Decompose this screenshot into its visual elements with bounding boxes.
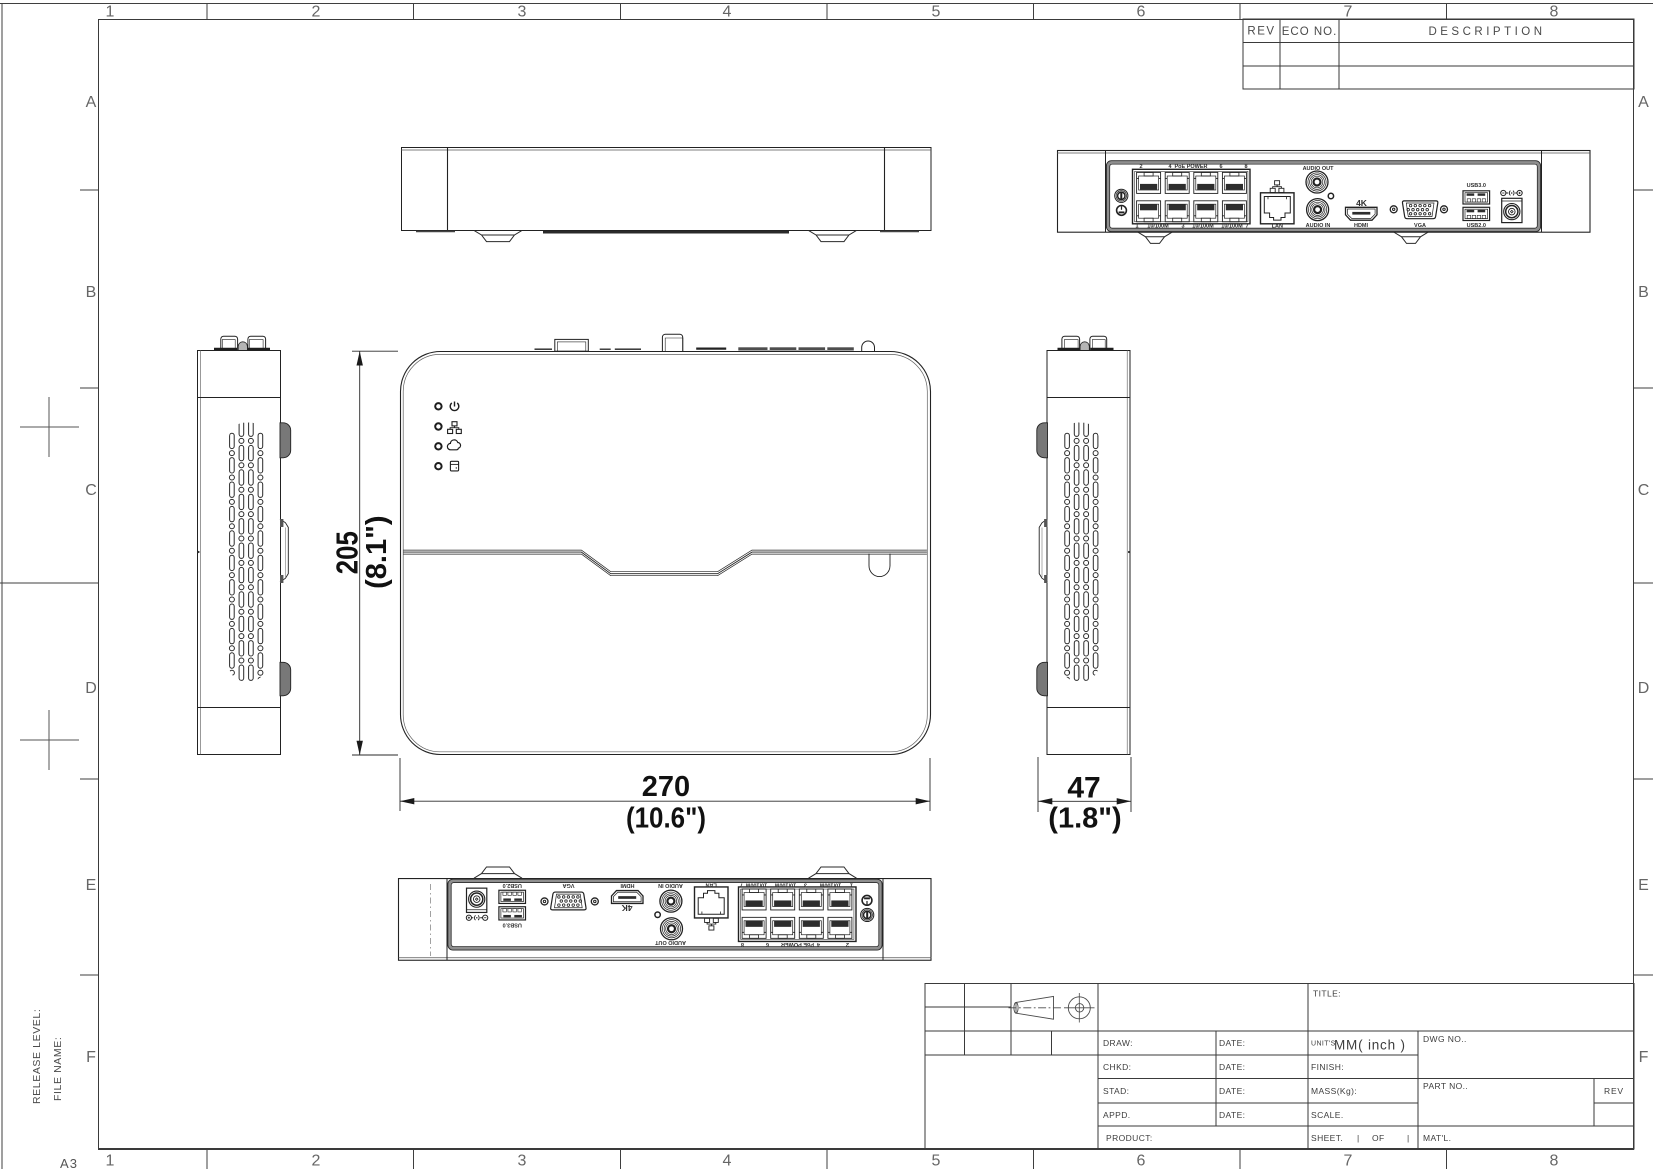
svg-text:AUDIO OUT: AUDIO OUT [1303, 166, 1335, 172]
svg-text:A: A [1638, 94, 1649, 111]
svg-text:10/100M: 10/100M [1221, 224, 1243, 230]
svg-text:DESCRIPTION: DESCRIPTION [1428, 26, 1545, 38]
svg-text:USB2.0: USB2.0 [1467, 223, 1486, 229]
svg-text:PART NO..: PART NO.. [1423, 1081, 1468, 1091]
svg-text:2: 2 [1139, 164, 1142, 170]
svg-text:DATE:: DATE: [1219, 1110, 1245, 1120]
svg-text:8: 8 [1550, 1153, 1559, 1169]
svg-text:270: 270 [642, 771, 690, 803]
svg-text:47: 47 [1067, 772, 1100, 805]
svg-text:D: D [85, 680, 97, 697]
svg-text:10/100M: 10/100M [1192, 224, 1214, 230]
svg-text:PRODUCT:: PRODUCT: [1106, 1133, 1153, 1143]
svg-text:RELEASE LEVEL:: RELEASE LEVEL: [31, 1009, 43, 1104]
svg-text:DATE:: DATE: [1219, 1038, 1245, 1048]
svg-text:4K: 4K [1356, 198, 1368, 208]
svg-text:C: C [1638, 482, 1650, 499]
svg-text:2: 2 [312, 1153, 321, 1169]
svg-text:USB3.0: USB3.0 [1467, 183, 1486, 189]
svg-text:STAD:: STAD: [1103, 1086, 1129, 1096]
svg-text:(8.1"): (8.1") [361, 516, 393, 589]
svg-text:6: 6 [1219, 164, 1222, 170]
svg-text:2: 2 [312, 4, 321, 21]
svg-text:3: 3 [518, 4, 527, 21]
svg-text:(1.8"): (1.8") [1048, 803, 1121, 835]
svg-text:DRAW:: DRAW: [1103, 1038, 1133, 1048]
svg-text:MASS(Kg):: MASS(Kg): [1311, 1086, 1357, 1096]
svg-text:ECO NO.: ECO NO. [1282, 26, 1338, 38]
svg-text:3: 3 [1181, 224, 1184, 230]
svg-text:205: 205 [330, 531, 365, 574]
svg-text:E: E [86, 877, 97, 894]
svg-text:7: 7 [1344, 4, 1353, 21]
svg-text:CHKD:: CHKD: [1103, 1062, 1131, 1072]
svg-text:VGA: VGA [1414, 223, 1426, 229]
svg-text:FINISH:: FINISH: [1311, 1062, 1344, 1072]
svg-text:B: B [86, 284, 97, 301]
svg-text:7: 7 [1245, 224, 1248, 230]
svg-text:|: | [1357, 1133, 1360, 1143]
svg-text:B: B [1638, 284, 1649, 301]
svg-text:1: 1 [106, 1153, 115, 1169]
svg-text:8: 8 [1244, 164, 1247, 170]
svg-text:TITLE:: TITLE: [1313, 989, 1341, 999]
svg-text:MAT'L.: MAT'L. [1423, 1133, 1451, 1143]
svg-text:DATE:: DATE: [1219, 1062, 1245, 1072]
svg-text:PoE POWER: PoE POWER [1174, 164, 1207, 170]
svg-text:5: 5 [932, 1153, 941, 1169]
svg-text:6: 6 [1137, 4, 1146, 21]
svg-text:FILE NAME:: FILE NAME: [52, 1037, 64, 1101]
svg-text:MM( inch ): MM( inch ) [1334, 1038, 1406, 1053]
svg-text:3: 3 [518, 1153, 527, 1169]
svg-text:LAN: LAN [1272, 224, 1283, 230]
svg-text:4: 4 [723, 1153, 732, 1169]
svg-text:6: 6 [1137, 1153, 1146, 1169]
svg-text:E: E [1638, 877, 1649, 894]
svg-text:DATE:: DATE: [1219, 1086, 1245, 1096]
svg-text:10/100M: 10/100M [1147, 224, 1169, 230]
svg-text:HDMI: HDMI [1354, 223, 1369, 229]
svg-text:C: C [85, 482, 97, 499]
svg-text:1: 1 [106, 4, 115, 21]
svg-text:REV: REV [1604, 1086, 1624, 1096]
svg-text:OF: OF [1372, 1133, 1385, 1143]
svg-text:SHEET.: SHEET. [1311, 1133, 1343, 1143]
svg-text:4: 4 [723, 4, 732, 21]
svg-text:1: 1 [1135, 224, 1138, 230]
svg-text:D: D [1638, 680, 1650, 697]
svg-text:UNIT'S: UNIT'S [1311, 1041, 1336, 1048]
svg-text:7: 7 [1344, 1153, 1353, 1169]
svg-text:F: F [1639, 1049, 1649, 1066]
svg-text:DWG NO..: DWG NO.. [1423, 1034, 1467, 1044]
svg-text:AUDIO IN: AUDIO IN [1306, 223, 1331, 229]
svg-text:5: 5 [932, 4, 941, 21]
svg-text:|: | [1407, 1133, 1410, 1143]
svg-text:(10.6"): (10.6") [626, 803, 706, 835]
svg-text:SCALE.: SCALE. [1311, 1110, 1344, 1120]
svg-text:A3: A3 [60, 1156, 78, 1169]
svg-text:F: F [86, 1049, 96, 1066]
svg-text:APPD.: APPD. [1103, 1110, 1131, 1120]
svg-text:A: A [86, 94, 97, 111]
svg-text:REV: REV [1247, 26, 1275, 38]
svg-text:8: 8 [1550, 4, 1559, 21]
